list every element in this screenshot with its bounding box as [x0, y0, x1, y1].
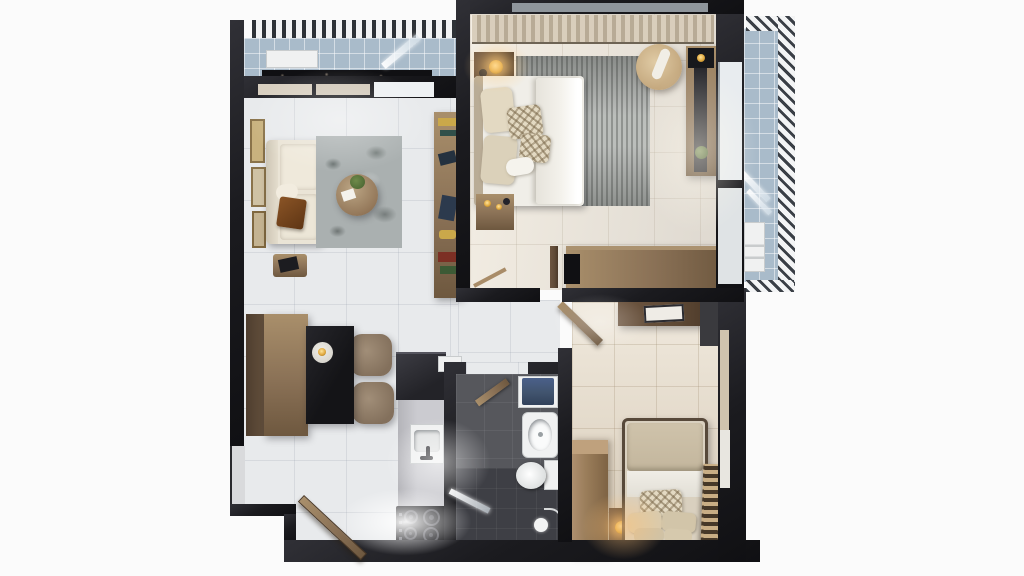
planter-box: [262, 70, 432, 81]
wall-right-lower: [718, 288, 746, 562]
toilet-bowl: [516, 462, 546, 489]
balcony-glass-door: [381, 34, 421, 69]
hallway-floor: [458, 300, 560, 370]
floorplan-render: [0, 0, 1024, 576]
bedroom-small-floor: [572, 302, 720, 542]
wall-window-light: [720, 430, 730, 488]
wall-top-bedroom: [456, 0, 744, 14]
window-sill: [316, 84, 370, 95]
wall-bedroom-bottom-right: [562, 288, 744, 302]
apartment-floorplan: [0, 0, 1024, 576]
wall-top-window-band: [512, 3, 708, 12]
window-wall-living: [242, 76, 462, 98]
louver-screen-top: [746, 16, 794, 31]
balcony-glass-door-right: [746, 189, 772, 215]
bedroom-main-floor: [470, 14, 716, 290]
bathroom-door: [475, 378, 510, 406]
window-glass: [374, 82, 434, 97]
basin-drain: [538, 432, 543, 437]
towels-blue: [522, 378, 554, 405]
basin-bowl: [528, 419, 552, 451]
window-sill: [258, 84, 312, 95]
window-right-lower: [718, 188, 742, 284]
window-right-upper: [718, 62, 742, 180]
wall-right-upper: [716, 0, 744, 292]
balcony-glass-door-right: [740, 171, 771, 203]
bathroom-walls: [444, 362, 566, 560]
wall-window-light: [720, 330, 729, 430]
hand-shower: [534, 518, 548, 532]
bathroom-floor: [456, 374, 558, 548]
pergola-louvers: [252, 20, 462, 44]
louver-screen-side: [778, 16, 795, 292]
wall-bottom: [284, 540, 760, 562]
toilet-tank: [544, 460, 559, 490]
balcony-right-floor: [744, 28, 780, 282]
shower-floor: [456, 468, 558, 548]
living-dining-floor: [242, 96, 460, 542]
bath-vanity: [518, 376, 558, 408]
wall-bedroom-small-left: [558, 348, 572, 542]
balcony-top-floor: [244, 38, 462, 78]
pedestal-basin: [522, 412, 558, 458]
louver-screen-bottom: [746, 280, 794, 292]
ac-unit-right: [744, 222, 765, 272]
ac-unit: [266, 50, 318, 68]
dried-plant: [248, 81, 282, 96]
shower-hose: [544, 508, 562, 526]
